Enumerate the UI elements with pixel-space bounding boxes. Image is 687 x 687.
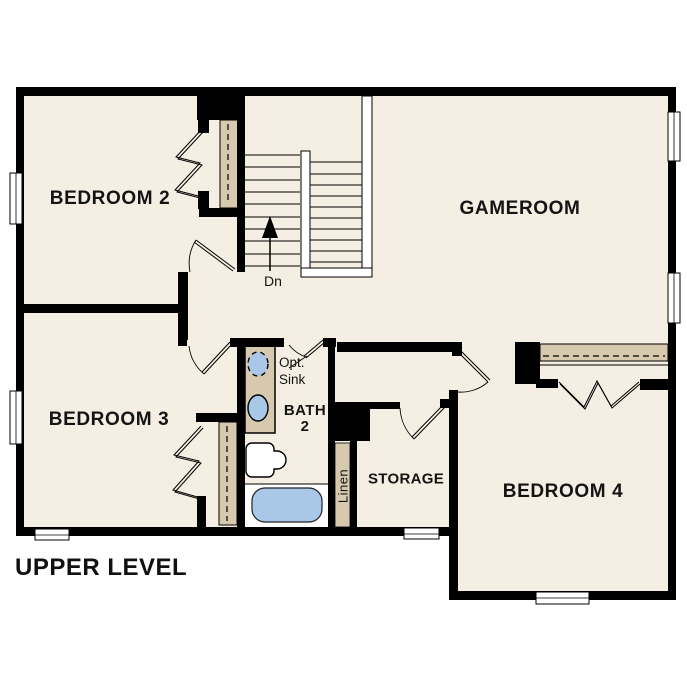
sink	[248, 395, 268, 421]
wall-exterior-top	[16, 87, 676, 96]
window-bedroom2-left	[10, 173, 22, 224]
wall-bedroom4-closet-front-right	[640, 379, 668, 390]
stair-right-stringer	[362, 96, 372, 277]
floor-plan: BEDROOM 2 GAMEROOM BEDROOM 3 BEDROOM 4 B…	[0, 0, 687, 687]
wall-exterior-right	[668, 87, 676, 600]
plan-title: UPPER LEVEL	[15, 554, 187, 582]
wall-bedroom3-closet-top	[196, 413, 240, 422]
stairs-dn-label: Dn	[264, 273, 282, 289]
stair-bottom-stringer	[301, 268, 372, 277]
floor-plan-drawing	[0, 0, 687, 687]
optional-sink-label-line2: Sink	[279, 372, 305, 389]
wall-bedroom4-closet-front-left	[536, 379, 558, 388]
window-storage-bottom	[404, 528, 439, 539]
bedroom3-label: BEDROOM 3	[49, 409, 169, 431]
wall-bedroom3-closet-stub	[197, 496, 206, 528]
bedroom2-closet-shelf	[220, 120, 238, 208]
wall-bedroom3-door-jamb	[178, 337, 187, 346]
gameroom-label: GAMEROOM	[460, 198, 581, 220]
window-bedroom3-bottom	[35, 529, 69, 540]
wall-bedroom4-closet-block	[515, 342, 540, 384]
bedroom2-label: BEDROOM 2	[50, 188, 170, 210]
bath-label-line1: BATH	[284, 403, 326, 419]
wall-storage-block	[333, 402, 370, 441]
wall-hall-south	[337, 342, 462, 352]
bedroom4-closet-shelf	[540, 344, 668, 361]
wall-linen-right	[350, 441, 357, 528]
window-gameroom-upper-right	[668, 112, 680, 161]
window-bedroom3-left	[10, 391, 22, 444]
linen-label: Linen	[336, 469, 351, 503]
window-gameroom-lower-right	[668, 273, 680, 323]
bath-label-line2: 2	[284, 419, 326, 435]
window-bedroom4-bottom	[536, 592, 589, 604]
wall-bath-left	[237, 338, 245, 529]
bathtub	[252, 488, 322, 522]
wall-bedroom4-left	[449, 390, 458, 592]
bedroom3-closet-shelf	[219, 422, 237, 525]
wall-bedroom2-closet-jamb-bottom	[198, 191, 209, 209]
optional-sink-label: Opt. Sink	[279, 355, 305, 388]
bedroom4-label: BEDROOM 4	[503, 481, 623, 503]
optional-sink	[248, 352, 268, 376]
bath-label: BATH 2	[284, 403, 326, 435]
wall-storage-door-jamb	[440, 399, 458, 408]
wall-bedroom2-bedroom3-divider	[16, 304, 178, 313]
wall-bedroom2-closet-bottom	[199, 208, 245, 217]
stair-center-stringer	[301, 151, 310, 269]
storage-label: STORAGE	[368, 471, 444, 488]
optional-sink-label-line1: Opt.	[279, 355, 305, 372]
wall-stairs-left	[237, 95, 245, 272]
wall-hall-west	[178, 272, 188, 340]
